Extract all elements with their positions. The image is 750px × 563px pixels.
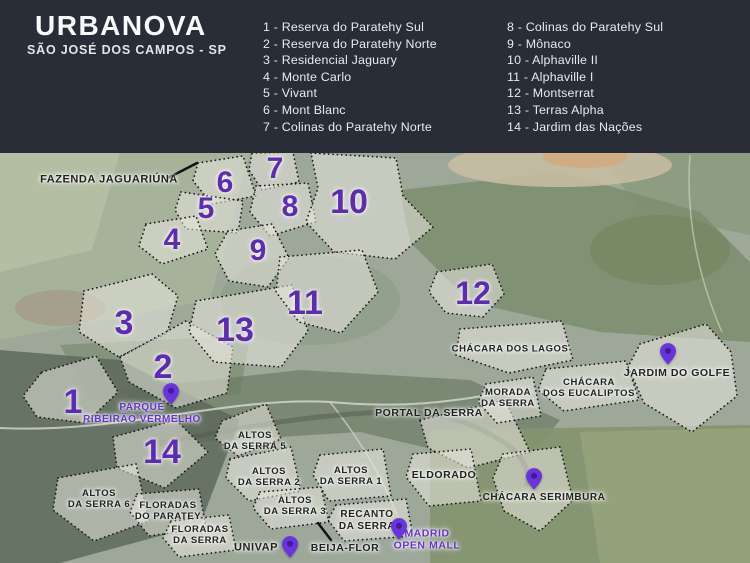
- page-title: URBANOVA: [35, 10, 207, 42]
- legend-item: 6 - Mont Blanc: [263, 104, 437, 117]
- legend-item: 10 - Alphaville II: [507, 54, 663, 67]
- legend-item: 2 - Reserva do Paratehy Norte: [263, 38, 437, 51]
- legend-item: 12 - Montserrat: [507, 87, 663, 100]
- urbanova-map-poster: 1234567891011121314FAZENDA JAGUARIÚNAPAR…: [0, 0, 750, 563]
- altos-da-serra-1-outline: [313, 449, 391, 501]
- legend-item: 3 - Residencial Jaguary: [263, 54, 437, 67]
- legend-item: 11 - Alphaville I: [507, 71, 663, 84]
- legend-item: 14 - Jardim das Nações: [507, 121, 663, 134]
- legend-item: 9 - Mônaco: [507, 38, 663, 51]
- legend-item: 7 - Colinas do Paratehy Norte: [263, 121, 437, 134]
- floradas-da-serra-outline: [163, 515, 236, 557]
- header: URBANOVA SÃO JOSÉ DOS CAMPOS - SP 1 - Re…: [0, 0, 750, 153]
- legend-item: 8 - Colinas do Paratehy Sul: [507, 21, 663, 34]
- legend-item: 1 - Reserva do Paratehy Sul: [263, 21, 437, 34]
- page-subtitle: SÃO JOSÉ DOS CAMPOS - SP: [27, 43, 227, 57]
- legend-column-2: 8 - Colinas do Paratehy Sul9 - Mônaco10 …: [507, 21, 663, 134]
- legend-column-1: 1 - Reserva do Paratehy Sul2 - Reserva d…: [263, 21, 437, 134]
- recanto-da-serra-outline: [328, 499, 413, 541]
- legend-item: 13 - Terras Alpha: [507, 104, 663, 117]
- legend-item: 5 - Vivant: [263, 87, 437, 100]
- legend-item: 4 - Monte Carlo: [263, 71, 437, 84]
